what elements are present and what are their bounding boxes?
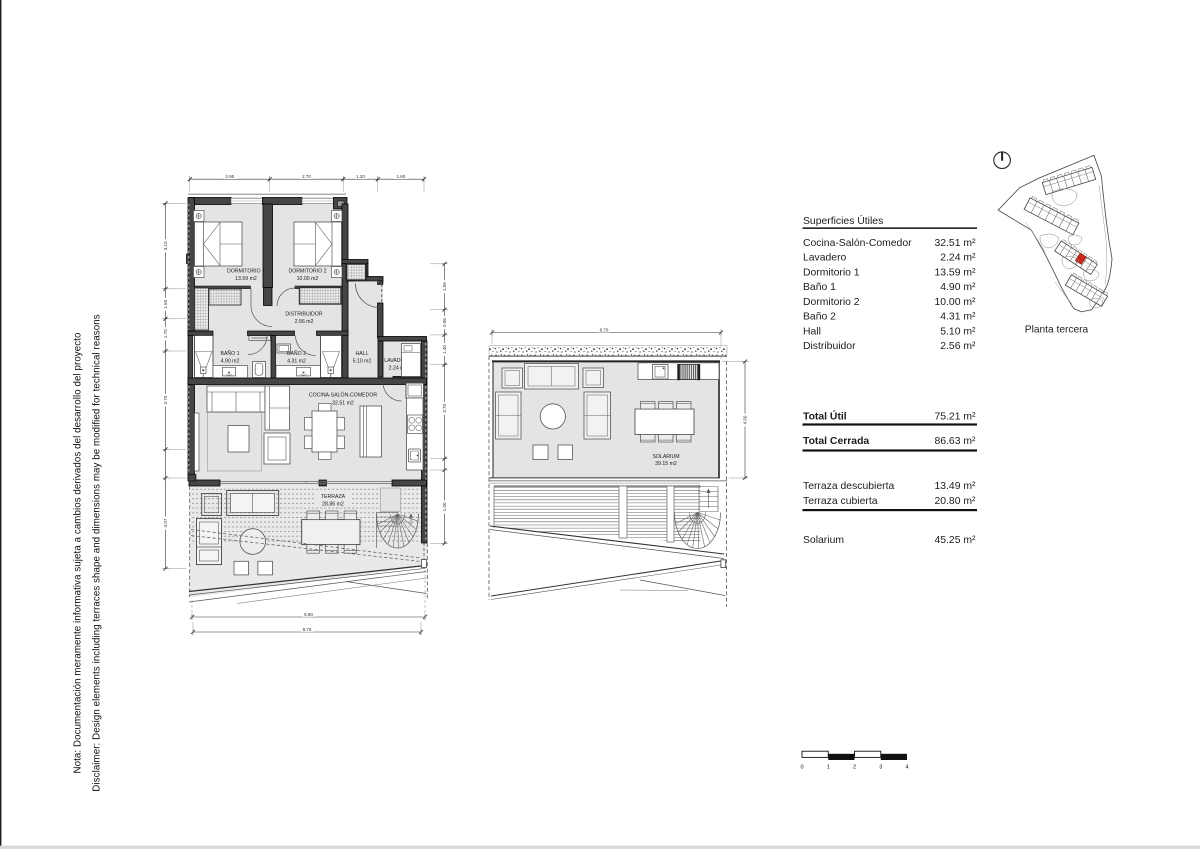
svg-text:BAÑO 1: BAÑO 1 (220, 350, 239, 357)
svg-text:39.15 m2: 39.15 m2 (655, 461, 677, 467)
svg-text:5.10 m²: 5.10 m² (940, 326, 976, 337)
svg-text:13.49 m²: 13.49 m² (934, 481, 976, 492)
svg-text:4.50: 4.50 (742, 415, 747, 424)
svg-text:SOLARIUM: SOLARIUM (652, 454, 679, 460)
svg-text:2.70: 2.70 (302, 174, 311, 179)
svg-text:1.70: 1.70 (163, 329, 168, 338)
svg-text:Baño 1: Baño 1 (803, 282, 836, 293)
svg-text:2: 2 (853, 765, 856, 771)
svg-text:9.70: 9.70 (303, 627, 312, 632)
svg-text:1.60: 1.60 (397, 174, 406, 179)
svg-text:Terraza cubierta: Terraza cubierta (803, 496, 878, 507)
svg-text:1.20: 1.20 (356, 174, 365, 179)
svg-text:TERRAZA: TERRAZA (321, 494, 346, 500)
svg-text:Nota: Documentación meramente: Nota: Documentación meramente informativ… (73, 333, 84, 774)
svg-text:Disclaimer: Design elements in: Disclaimer: Design elements including te… (92, 314, 103, 791)
svg-text:1.00: 1.00 (442, 502, 447, 511)
svg-text:4.90 m²: 4.90 m² (940, 282, 976, 293)
svg-text:COCINA-SALÓN-COMEDOR: COCINA-SALÓN-COMEDOR (309, 392, 378, 399)
svg-text:Dormitorio 2: Dormitorio 2 (803, 297, 860, 308)
svg-text:Cocina-Salón-Comedor: Cocina-Salón-Comedor (803, 238, 912, 249)
svg-text:5.10 m2: 5.10 m2 (353, 359, 372, 365)
svg-text:Superficies Útiles: Superficies Útiles (803, 214, 883, 227)
svg-text:10.00 m²: 10.00 m² (934, 297, 976, 308)
svg-text:2.95: 2.95 (225, 174, 234, 179)
svg-text:9.90: 9.90 (304, 612, 313, 617)
svg-text:Terraza descubierta: Terraza descubierta (803, 481, 894, 492)
svg-text:1.55: 1.55 (442, 282, 447, 291)
svg-text:1.40: 1.40 (442, 345, 447, 354)
svg-text:3.15: 3.15 (163, 241, 168, 250)
svg-text:Dormitorio 1: Dormitorio 1 (803, 267, 860, 278)
svg-text:28.86 m2: 28.86 m2 (322, 502, 344, 508)
svg-text:Total Útil: Total Útil (803, 410, 847, 423)
svg-text:75.21 m²: 75.21 m² (934, 412, 976, 423)
svg-text:4.31 m²: 4.31 m² (940, 312, 976, 323)
svg-text:10.00 m2: 10.00 m2 (297, 276, 319, 282)
svg-text:0.95: 0.95 (442, 318, 447, 327)
svg-text:8.70: 8.70 (600, 327, 609, 332)
svg-text:20.80 m²: 20.80 m² (934, 496, 976, 507)
svg-text:32.51 m²: 32.51 m² (934, 238, 976, 249)
svg-text:Distribuidor: Distribuidor (803, 341, 856, 352)
svg-text:45.25 m²: 45.25 m² (934, 535, 976, 546)
svg-text:3: 3 (879, 765, 882, 771)
svg-text:Planta tercera: Planta tercera (1025, 325, 1089, 336)
svg-text:DORMITORIO 1: DORMITORIO 1 (227, 269, 265, 275)
svg-text:3.70: 3.70 (163, 395, 168, 404)
svg-text:32.51 m2: 32.51 m2 (332, 401, 354, 407)
svg-text:Total Cerrada: Total Cerrada (803, 436, 869, 447)
svg-text:4.90 m2: 4.90 m2 (221, 359, 240, 365)
svg-text:4.07: 4.07 (163, 518, 168, 527)
svg-text:3.70: 3.70 (442, 403, 447, 412)
svg-text:13.59 m²: 13.59 m² (934, 267, 976, 278)
svg-text:1.55: 1.55 (163, 299, 168, 308)
svg-text:Baño 2: Baño 2 (803, 312, 836, 323)
svg-text:2.24 m²: 2.24 m² (940, 253, 976, 264)
svg-text:2.56 m²: 2.56 m² (940, 341, 976, 352)
svg-text:Lavadero: Lavadero (803, 253, 847, 264)
svg-text:0: 0 (800, 765, 803, 771)
svg-text:Solarium: Solarium (803, 535, 844, 546)
svg-text:Hall: Hall (803, 326, 821, 337)
svg-text:DISTRIBUIDOR: DISTRIBUIDOR (285, 312, 322, 318)
svg-text:HALL: HALL (356, 351, 369, 357)
svg-text:1: 1 (827, 765, 830, 771)
svg-text:2.56 m2: 2.56 m2 (295, 319, 314, 325)
svg-text:86.63 m²: 86.63 m² (934, 436, 976, 447)
svg-text:4: 4 (905, 765, 908, 771)
svg-text:DORMITORIO 2: DORMITORIO 2 (289, 269, 327, 275)
svg-text:13.59 m2: 13.59 m2 (235, 276, 257, 282)
svg-text:4.31 m2: 4.31 m2 (287, 359, 306, 365)
